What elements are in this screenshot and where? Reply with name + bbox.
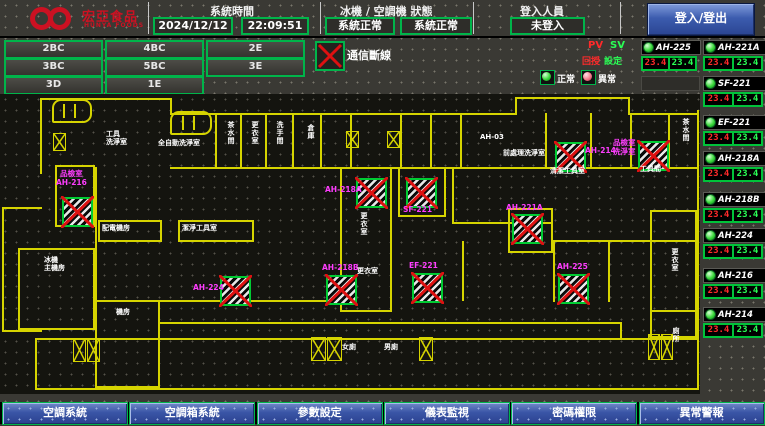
map-equipment-ah-216[interactable]: [62, 197, 93, 227]
x-mark-icon: [557, 273, 590, 305]
red-x-icon: [317, 43, 343, 69]
x-mark-icon: [54, 134, 65, 150]
nav-button-password-auth[interactable]: 密碼權限: [511, 402, 637, 425]
map-wall: [320, 113, 322, 169]
map-room-label: 女廁: [342, 343, 356, 351]
green-led-icon: [643, 42, 654, 53]
map-room-label: 全自動洗淨室: [158, 139, 200, 147]
topbar-divider: [473, 2, 474, 34]
map-wall: [608, 240, 610, 302]
green-led-icon: [705, 117, 716, 128]
device-name-sf-221: SF-221: [718, 79, 751, 89]
floor-button-1e[interactable]: 1E: [105, 76, 204, 95]
map-stair-icon: [87, 338, 100, 362]
floor-button-5bc[interactable]: 5BC: [105, 58, 204, 77]
map-wall: [292, 113, 294, 169]
device-sv-ah-221a: 23.4: [733, 57, 762, 70]
comm-disconnect-label: 通信斷線: [347, 47, 391, 63]
floor-map: 品檢室 AH-216AH-224AH-218BEF-221AH-225AH-21…: [0, 94, 700, 394]
map-equipment-label-ah-214: AH-214: [585, 147, 616, 156]
device-plate-ef-221[interactable]: EF-221: [703, 115, 765, 130]
map-wall: [170, 113, 517, 115]
logo-ring-right: [48, 7, 71, 30]
map-room-label: 更衣室: [251, 121, 259, 145]
chiller-status-value: 系統正常: [325, 17, 395, 35]
legend-pv-label: PV: [588, 40, 603, 51]
map-wall: [2, 207, 4, 332]
device-sv-ah-218a: 23.4: [733, 168, 762, 181]
nav-button-ac-system[interactable]: 空調系統: [2, 402, 128, 425]
floor-button-3d[interactable]: 3D: [4, 76, 103, 95]
map-wall: [590, 113, 592, 169]
map-room-label: 機房: [116, 308, 130, 316]
topbar-divider: [620, 2, 621, 34]
device-pv-ah-218a: 23.4: [704, 168, 733, 181]
device-sv-ah-225: 23.4: [669, 57, 696, 70]
green-led-icon: [705, 194, 716, 205]
map-stair-icon: [346, 131, 359, 148]
device-pv-ah-224: 23.4: [704, 245, 733, 258]
map-wall: [2, 330, 42, 332]
map-equipment-ah-224[interactable]: [220, 276, 251, 306]
device-values-ah-214: 23.423.4: [703, 323, 763, 338]
floor-button-3bc[interactable]: 3BC: [4, 58, 103, 77]
x-mark-icon: [219, 275, 252, 307]
map-wall: [35, 388, 697, 390]
map-wall: [400, 113, 402, 169]
map-room-label: 倉庫: [307, 124, 315, 140]
map-stair-icon: [73, 338, 86, 362]
map-equipment-ah-225[interactable]: [558, 274, 589, 304]
x-mark-icon: [88, 339, 99, 361]
login-logout-button[interactable]: 登入/登出: [648, 4, 754, 35]
floor-button-3e[interactable]: 3E: [206, 58, 305, 77]
map-wall: [452, 167, 454, 224]
device-pv-ah-218b: 23.4: [704, 209, 733, 222]
map-wall: [40, 98, 42, 174]
map-wall: [95, 167, 97, 302]
map-room-label: 工具間: [640, 165, 661, 173]
map-wall: [160, 322, 622, 324]
map-equipment-label-sf-221: SF-221: [403, 206, 432, 215]
device-values-ah-221a: 23.423.4: [703, 56, 763, 71]
map-room-label: 廁所: [672, 327, 680, 343]
map-wall: [215, 113, 217, 169]
device-values-ef-221: 23.423.4: [703, 131, 763, 146]
map-equipment-label-ah-224: AH-224: [193, 284, 224, 293]
map-stair-icon: [387, 131, 400, 148]
x-mark-icon: [649, 335, 659, 359]
map-wall: [430, 113, 432, 169]
x-mark-icon: [662, 335, 672, 359]
empty-device-slot: [641, 76, 700, 91]
brand-name-en: HUNYA FOODS: [84, 22, 144, 29]
map-wall: [35, 340, 37, 390]
device-sv-ah-216: 23.4: [733, 285, 762, 298]
device-name-ah-224: AH-224: [718, 231, 753, 241]
x-mark-icon: [347, 132, 358, 147]
device-name-ah-221a: AH-221A: [718, 43, 760, 53]
nav-button-alarm[interactable]: 異常警報: [639, 402, 765, 425]
device-sv-sf-221: 23.4: [733, 93, 762, 106]
map-equipment-label-ah-218a: AH-218A: [325, 186, 362, 195]
ahu-status-value: 系統正常: [400, 17, 472, 35]
device-values-ah-218a: 23.423.4: [703, 167, 763, 182]
device-values-ah-216: 23.423.4: [703, 284, 763, 299]
map-wall: [553, 240, 555, 302]
map-wall: [628, 97, 630, 115]
map-equipment-label-ah-216: 品檢室 AH-216: [56, 170, 87, 187]
login-user-value: 未登入: [510, 17, 585, 35]
device-name-ah-214: AH-214: [718, 310, 753, 320]
system-time-value: 22:09:51: [241, 17, 309, 35]
topbar-divider: [320, 2, 321, 34]
device-name-ah-216: AH-216: [718, 271, 753, 281]
map-wall: [553, 240, 652, 242]
green-led-icon: [705, 309, 716, 320]
floor-button-2bc[interactable]: 2BC: [4, 40, 103, 59]
map-room-label: 工具 洗淨室: [106, 130, 127, 146]
system-date-value: 2024/12/12: [153, 17, 233, 35]
legend-setting-label: 設定: [604, 54, 622, 67]
device-plate-ah-216[interactable]: AH-216: [703, 268, 765, 283]
map-room-label: 更衣室: [671, 248, 679, 272]
legend-feedback-label: 回授: [582, 54, 600, 67]
legend-abnormal-label: 異常: [598, 72, 616, 85]
device-values-ah-225: 23.423.4: [641, 56, 697, 71]
legend-sv-label: SV: [610, 40, 625, 51]
device-name-ah-218a: AH-218A: [718, 154, 760, 164]
map-room-label: 更衣室: [357, 267, 378, 275]
device-name-ef-221: EF-221: [718, 118, 750, 128]
legend-normal-label: 正常: [557, 72, 575, 85]
map-stair-icon: [311, 337, 326, 361]
map-room-label: 更衣室: [360, 212, 368, 236]
nav-button-meter-monitor[interactable]: 儀表監視: [384, 402, 510, 425]
map-wall: [240, 113, 242, 169]
map-equipment-sf-221[interactable]: [406, 178, 437, 208]
map-wall: [462, 241, 464, 301]
map-room-label: 男廁: [384, 343, 398, 351]
device-values-sf-221: 23.423.4: [703, 92, 763, 107]
device-plate-ah-221a[interactable]: AH-221A: [703, 40, 765, 55]
map-equipment-label-pinjian: 品檢室 洗淨室: [613, 139, 636, 156]
device-values-ah-218b: 23.423.4: [703, 208, 763, 223]
topbar-divider: [148, 2, 149, 34]
x-mark-icon: [74, 339, 85, 361]
x-mark-icon: [411, 272, 444, 304]
nav-button-param-setting[interactable]: 參數設定: [257, 402, 383, 425]
device-name-ah-218b: AH-218B: [718, 195, 759, 205]
device-values-ah-224: 23.423.4: [703, 244, 763, 259]
x-mark-icon: [312, 338, 325, 360]
comm-disconnect-x-icon: [315, 41, 345, 71]
x-mark-icon: [325, 274, 358, 306]
device-pv-ah-216: 23.4: [704, 285, 733, 298]
device-pv-ef-221: 23.4: [704, 132, 733, 145]
green-led-icon: [542, 72, 551, 81]
map-lift-icon: [170, 111, 212, 135]
floor-button-4bc[interactable]: 4BC: [105, 40, 204, 59]
map-wall: [515, 97, 517, 115]
map-lift-icon: [52, 99, 92, 123]
device-plate-ah-214[interactable]: AH-214: [703, 307, 765, 322]
map-room-label: 配電機房: [102, 224, 130, 232]
app-topbar: 宏亞食品 HUNYA FOODS 系統時間 2024/12/12 22:09:5…: [0, 0, 765, 38]
device-plate-ah-218a[interactable]: AH-218A: [703, 151, 765, 166]
map-room: [650, 210, 697, 338]
map-stair-icon: [648, 334, 660, 360]
device-name-ah-225: AH-225: [656, 43, 691, 53]
map-wall: [265, 113, 267, 169]
bottom-nav-bar: 空調系統空調箱系統參數設定儀表監視密碼權限異常警報: [0, 402, 765, 424]
nav-button-ahu-system[interactable]: 空調箱系統: [129, 402, 255, 425]
map-room-label: 茶水間: [227, 121, 235, 145]
x-mark-icon: [420, 338, 432, 360]
map-equipment-label-ah-218b: AH-218B: [322, 264, 359, 273]
map-room-label: 茶水間: [682, 118, 690, 142]
device-sv-ef-221: 23.4: [733, 132, 762, 145]
map-stair-icon: [419, 337, 433, 361]
map-equipment-ef-221[interactable]: [412, 273, 443, 303]
map-room-label: 前處理洗淨室: [503, 149, 545, 157]
device-plate-ah-218b[interactable]: AH-218B: [703, 192, 765, 207]
x-mark-icon: [388, 132, 399, 147]
device-pv-ah-214: 23.4: [704, 324, 733, 337]
map-wall: [697, 110, 699, 390]
green-led-icon: [705, 270, 716, 281]
map-room-label: AH-03: [480, 133, 504, 141]
map-wall: [515, 97, 630, 99]
device-pv-ah-221a: 23.4: [704, 57, 733, 70]
device-sv-ah-214: 23.4: [733, 324, 762, 337]
map-equipment-label-ah-225: AH-225: [557, 263, 588, 272]
map-wall: [620, 322, 622, 340]
map-equipment-label-ef-221: EF-221: [409, 262, 438, 271]
map-wall: [170, 98, 172, 115]
pink-led-icon: [583, 72, 592, 81]
map-equipment-label-ah-221a: AH-221A: [506, 204, 543, 213]
map-room-label: 潔淨工具室: [182, 224, 217, 232]
device-plate-ah-224[interactable]: AH-224: [703, 228, 765, 243]
map-wall: [460, 113, 462, 169]
device-sv-ah-224: 23.4: [733, 245, 762, 258]
green-led-icon: [705, 42, 716, 53]
x-mark-icon: [328, 338, 341, 360]
green-led-icon: [705, 230, 716, 241]
x-mark-icon: [61, 196, 94, 228]
map-equipment-ah-221a[interactable]: [512, 214, 543, 244]
device-pv-sf-221: 23.4: [704, 93, 733, 106]
device-plate-ah-225[interactable]: AH-225: [641, 40, 701, 55]
map-wall: [545, 113, 547, 169]
map-equipment-ah-218b[interactable]: [326, 275, 357, 305]
legend-abnormal-led: [581, 70, 596, 85]
device-plate-sf-221[interactable]: SF-221: [703, 76, 765, 91]
green-led-icon: [705, 78, 716, 89]
device-pv-ah-225: 23.4: [642, 57, 669, 70]
map-stair-icon: [327, 337, 342, 361]
device-sv-ah-218b: 23.4: [733, 209, 762, 222]
x-mark-icon: [511, 213, 544, 245]
map-wall: [2, 207, 42, 209]
map-room-label: 冰機 主機房: [44, 256, 65, 272]
map-room-label: 清潔工具室: [550, 167, 585, 175]
map-wall: [630, 113, 697, 115]
legend-normal-led: [540, 70, 555, 85]
map-room-label: 洗手間: [276, 121, 284, 145]
map-stair-icon: [53, 133, 66, 151]
green-led-icon: [705, 153, 716, 164]
floor-button-2e[interactable]: 2E: [206, 40, 305, 59]
